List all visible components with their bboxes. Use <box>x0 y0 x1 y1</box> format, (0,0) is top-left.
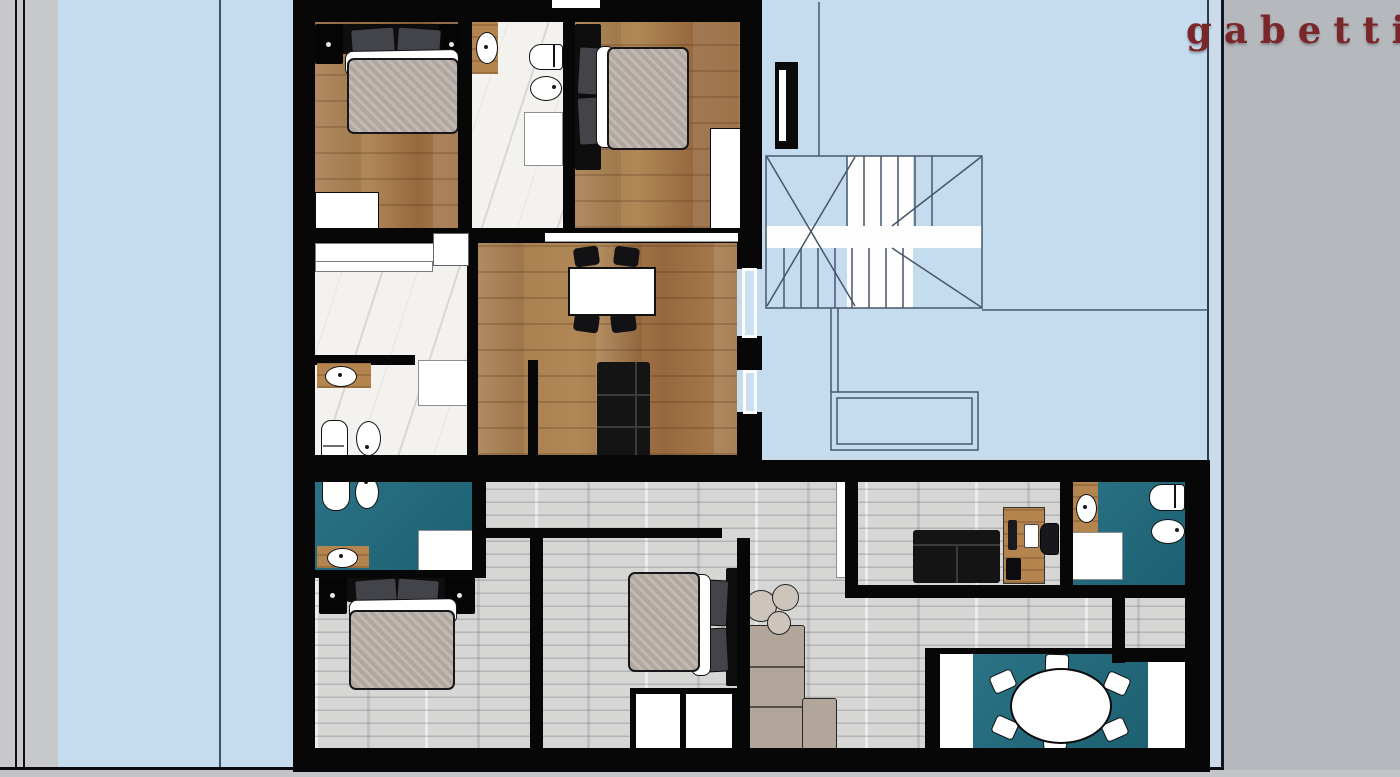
wall-interior <box>528 360 538 455</box>
wall-interior <box>472 473 486 578</box>
bidet-faucet-icon <box>552 85 556 89</box>
dining-door-panel <box>940 652 973 748</box>
toilet <box>321 420 348 457</box>
wall-top <box>293 460 1210 482</box>
dining-chair <box>573 245 600 267</box>
wall-right <box>1185 460 1210 772</box>
entrance-door-icon <box>775 62 798 149</box>
counter-unit <box>433 233 469 266</box>
wall-top <box>293 0 762 22</box>
sofa-seam <box>746 706 804 708</box>
bathroom-2-door <box>418 360 474 406</box>
wall-interior <box>293 570 486 578</box>
window-opening <box>552 0 600 8</box>
wardrobe-door <box>636 694 680 748</box>
lamp-icon <box>449 42 454 47</box>
wall-interior <box>467 243 478 455</box>
faucet-icon <box>339 554 343 558</box>
sofa-seam <box>746 666 804 668</box>
washbasin <box>327 548 358 568</box>
faucet-icon <box>484 45 488 49</box>
counter-unit <box>315 261 433 272</box>
wardrobe-door <box>686 694 732 748</box>
dining-door-panel <box>1148 654 1185 748</box>
wall-interior <box>845 585 1185 598</box>
band-line <box>23 0 25 770</box>
office-chair <box>1040 523 1059 555</box>
bidet <box>530 76 562 101</box>
toilet-tank-line <box>553 45 555 67</box>
sofa-seam <box>597 426 650 428</box>
wall-interior <box>925 652 940 750</box>
bidet <box>1151 519 1185 544</box>
washbasin <box>1076 494 1097 523</box>
wall-interior <box>530 538 543 750</box>
wall-interior <box>845 473 858 598</box>
upper-apartment <box>293 0 762 480</box>
window <box>742 268 757 338</box>
double-bed <box>349 610 455 690</box>
sofa-seam <box>635 362 637 459</box>
printer-icon <box>1006 558 1021 580</box>
double-bed <box>628 572 700 672</box>
wardrobe <box>710 128 742 230</box>
bidet <box>356 421 381 456</box>
site-boundary-line <box>219 0 221 768</box>
wall-interior <box>482 528 722 538</box>
wall-left <box>293 460 315 772</box>
toilet-seat-line <box>323 445 344 447</box>
bidet-faucet-icon <box>1175 528 1179 532</box>
wall-interior <box>1112 648 1185 662</box>
double-bed <box>347 58 459 134</box>
sofa <box>597 362 650 459</box>
lamp-icon <box>330 593 335 598</box>
wall-bottom <box>293 748 1210 772</box>
toilet <box>529 44 563 70</box>
double-bed <box>607 47 689 150</box>
band-line <box>15 0 17 770</box>
lamp-icon <box>457 593 462 598</box>
pouf <box>772 584 799 611</box>
wall-interior <box>1060 473 1073 585</box>
wall-interior <box>925 648 1115 654</box>
lamp-icon <box>326 42 331 47</box>
window <box>743 370 757 414</box>
wall-interior <box>458 22 472 228</box>
bathroom-1-door <box>524 112 563 166</box>
brand-logo: gabetti <box>1186 8 1400 52</box>
sofa-seam <box>956 544 958 583</box>
window-sill <box>545 233 738 242</box>
toilet-tank-line <box>1174 485 1176 508</box>
wall-segment <box>737 336 762 370</box>
pouf <box>767 611 791 635</box>
right-gray-area <box>1224 0 1400 777</box>
faucet-icon <box>338 373 342 377</box>
bathroom-3-door <box>418 530 474 572</box>
corner-sofa-chaise <box>802 698 837 750</box>
oval-dining-table <box>1010 668 1112 744</box>
wall-right <box>740 0 762 243</box>
wall-segment <box>737 243 762 269</box>
study-sofa <box>913 530 1000 583</box>
bidet-faucet-icon <box>365 445 369 449</box>
stair-landing-band <box>766 226 982 248</box>
entrance-door-leaf <box>779 70 786 141</box>
bathroom-4-door <box>1071 532 1123 580</box>
lower-apartment <box>293 460 1210 772</box>
lower-landing-inner <box>837 398 972 444</box>
monitor-icon <box>1008 520 1017 550</box>
wall-interior <box>737 538 750 750</box>
toilet <box>1149 484 1185 511</box>
faucet-icon <box>1083 505 1087 509</box>
stairwell <box>760 0 1230 460</box>
dining-table <box>568 267 656 316</box>
wall-segment <box>737 412 762 460</box>
laptop <box>1024 524 1039 548</box>
wall-interior <box>563 22 575 228</box>
corner-sofa <box>745 625 805 750</box>
sofa-seam <box>597 394 650 396</box>
dining-chair <box>613 246 640 268</box>
left-gray-band <box>0 0 58 777</box>
lower-landing <box>831 392 978 450</box>
wardrobe <box>315 192 379 231</box>
floor-plan-canvas: gabetti <box>0 0 1400 777</box>
